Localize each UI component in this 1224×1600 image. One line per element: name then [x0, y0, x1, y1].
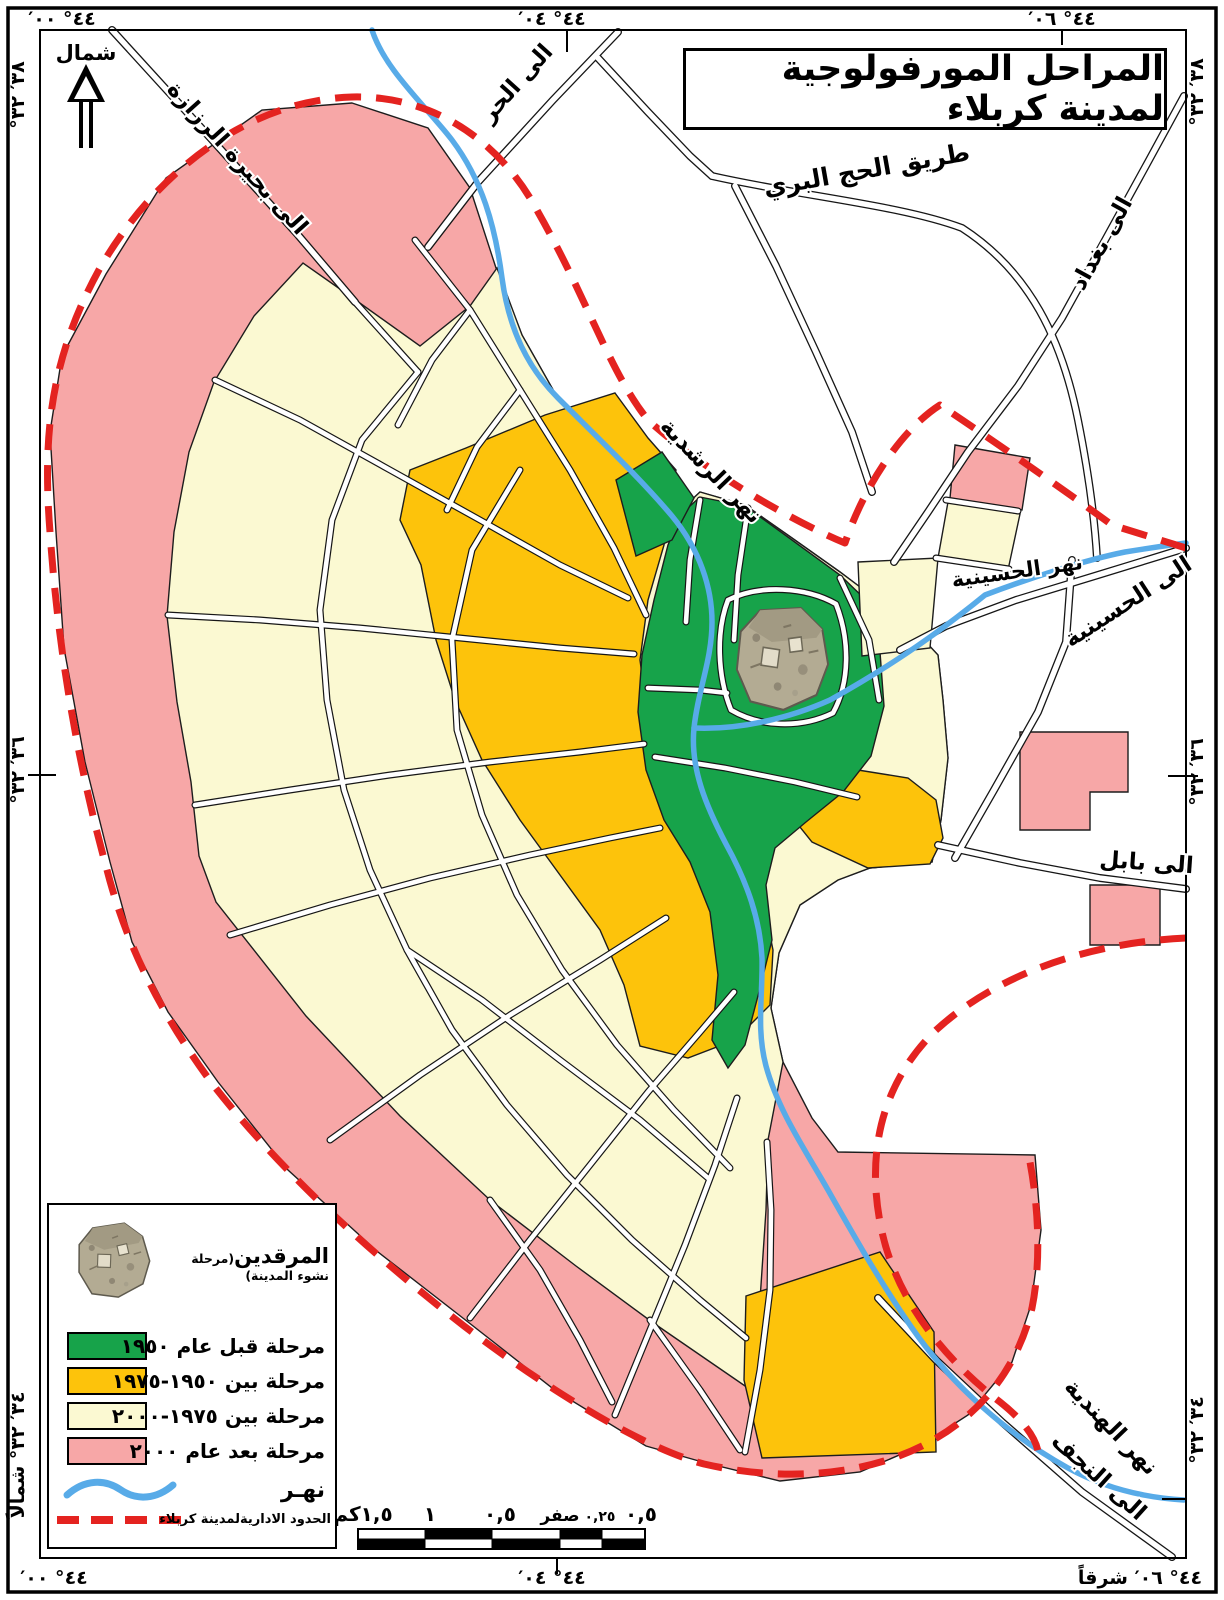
coord-bottom-left: ٤٤° ٠٠′: [20, 1567, 88, 1589]
map-title-box: المراحل المورفولوجية لمدينة كربلاء: [683, 48, 1167, 130]
scale-label-0-25: ٠,٢٥: [585, 1509, 616, 1525]
coord-bottom-right: ٤٤° ٠٦′ شرقاً: [1078, 1564, 1202, 1589]
legend-header: المرقدين(مرحلة نشوء المدينة): [157, 1245, 329, 1284]
legend-label-post-2000: مرحلة بعد عام ٢٠٠٠: [130, 1437, 325, 1465]
coord-left-bottom: ٣٤′ ٣٢° شمالاً: [5, 1392, 29, 1519]
compass: شمال: [56, 41, 117, 148]
legend-label-pre-1950: مرحلة قبل عام ١٩٥٠: [121, 1332, 325, 1360]
label-babylon-road: الى بابل: [1099, 847, 1195, 880]
scale-label-zero: صفر: [539, 1506, 579, 1526]
label-hajj-road: طريق الحج البري: [761, 137, 972, 203]
scale-label-1: ١: [424, 1502, 436, 1526]
map-title: المراحل المورفولوجية لمدينة كربلاء: [686, 49, 1164, 129]
north-arrow-icon: [67, 64, 105, 148]
scale-bar-segments: [358, 1529, 645, 1549]
label-baghdad-road: الى بغداد: [1066, 193, 1138, 295]
legend-item-boundary: الحدود الاداريةلمدينة كربلاء: [49, 1507, 335, 1537]
legend-item-post-2000: مرحلة بعد عام ٢٠٠٠: [49, 1437, 335, 1467]
legend-item-1975-2000: مرحلة بين ١٩٧٥-٢٠٠٠: [49, 1402, 335, 1432]
coord-bottom-center: ٤٤° ٠٤′: [518, 1567, 586, 1589]
scale-label-0-5L: ٠,٥: [484, 1502, 516, 1526]
coord-right-middle: ٣٦′ ٣٢°: [1186, 738, 1208, 806]
legend-item-1950-1975: مرحلة بين ١٩٥٠-١٩٧٥: [49, 1367, 335, 1397]
river-line-icon: [61, 1473, 179, 1507]
coord-left-middle: ٣٦′ ٣٢°: [7, 736, 29, 804]
scale-label-1-5km: ١,٥كم: [333, 1502, 392, 1526]
label-hurr-road: الى الحر: [475, 39, 559, 128]
coord-right-top: ٣٨′ ٣٢°: [1186, 58, 1208, 126]
legend-label-boundary: الحدود الاداريةلمدينة كربلاء: [159, 1507, 331, 1533]
legend-label-river: نهـر: [281, 1477, 325, 1505]
karbala-morphology-map: شمال ٤٤° ٠٠′ ٤٤° ٠٤′ ٤٤° ٠٦′ ٤٤° ٠٠′ ٤٤°…: [0, 0, 1224, 1600]
coord-right-bottom: ٣٤′ ٣٢°: [1186, 1396, 1208, 1464]
legend-box: المرقدين(مرحلة نشوء المدينة) مرحلة قبل ع…: [47, 1203, 337, 1549]
coord-left-top: ٣٨′ ٣٢°: [7, 61, 29, 129]
legend-item-river: نهـر: [49, 1477, 335, 1507]
scale-bar: ١,٥كم ١ ٠,٥ صفر ٠,٢٥ ٠,٥: [333, 1502, 657, 1549]
coord-top-center: ٤٤° ٠٤′: [518, 8, 586, 30]
legend-shrine-title: المرقدين: [234, 1244, 329, 1268]
coord-top-left: ٤٤° ٠٠′: [28, 8, 96, 30]
east-block-pink-2: [1090, 885, 1160, 945]
compass-label: شمال: [56, 41, 117, 65]
scale-label-0-5R: ٠,٥: [625, 1502, 657, 1526]
legend-item-pre-1950: مرحلة قبل عام ١٩٥٠: [49, 1332, 335, 1362]
coord-top-right: ٤٤° ٠٦′: [1028, 8, 1096, 30]
legend-label-1975-2000: مرحلة بين ١٩٧٥-٢٠٠٠: [112, 1402, 325, 1430]
shrine-photo-legend: [71, 1215, 155, 1306]
shrine-photo-map: [737, 608, 828, 710]
east-block-pink-1: [1020, 732, 1128, 830]
legend-label-1950-1975: مرحلة بين ١٩٥٠-١٩٧٥: [112, 1367, 325, 1395]
